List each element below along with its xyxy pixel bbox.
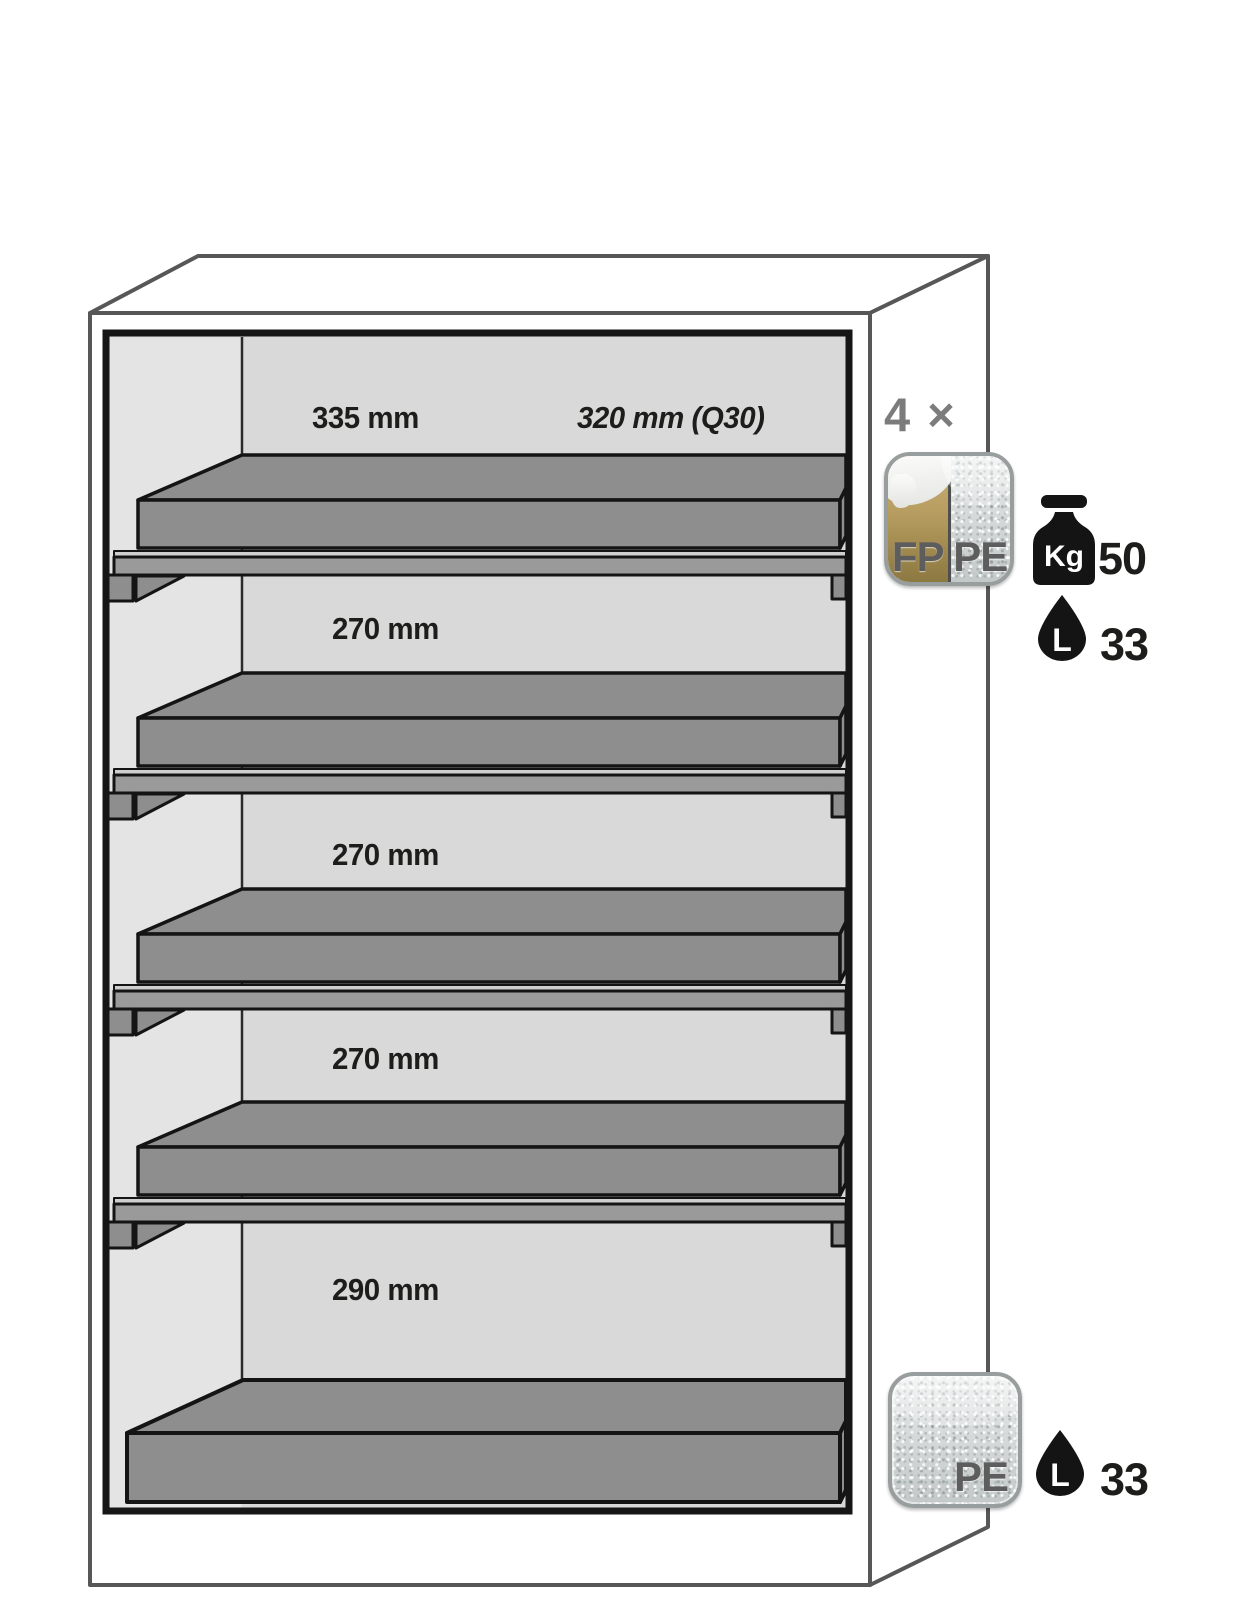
shelf-bracket-right <box>832 793 846 817</box>
compartment-1-height-label: 335 mm <box>312 400 419 436</box>
tray-top <box>138 1102 846 1147</box>
weight-unit-label: Kg <box>1044 540 1084 573</box>
cabinet-top-face <box>90 256 988 313</box>
shelf-count-label: 4 × <box>884 390 957 440</box>
volume-unit-label: L <box>1050 1457 1070 1493</box>
drop-icon: L <box>1036 595 1088 661</box>
shelf-board <box>114 557 846 575</box>
tray-top <box>138 455 846 500</box>
shelf-board <box>114 991 846 1009</box>
badge-pe-label: PE <box>954 1456 1008 1502</box>
tray-front <box>138 934 840 982</box>
shelf-bracket-right <box>832 1009 846 1033</box>
shelf-bracket-right <box>832 1222 846 1246</box>
shelf-board <box>114 1204 846 1222</box>
shelf-material-badge: FP PE <box>884 452 1014 586</box>
tray-front <box>138 500 840 548</box>
tray-top <box>138 889 846 934</box>
shelf-bracket-left <box>108 1009 133 1035</box>
drop-icon: L <box>1034 1430 1086 1496</box>
cabinet-line-art <box>0 0 1241 1624</box>
tray-endcap <box>840 706 846 766</box>
shelf-load-value: 50 <box>1098 535 1146 583</box>
sump-endcap <box>840 1421 846 1502</box>
tray-front <box>138 1147 840 1195</box>
weight-icon: Kg <box>1032 495 1096 585</box>
compartment-5-height-label: 290 mm <box>332 1272 439 1308</box>
tray-endcap <box>840 922 846 982</box>
shelf-bracket-left <box>108 793 133 819</box>
safety-cabinet-diagram: 335 mm 320 mm (Q30) 270 mm 270 mm 270 mm… <box>0 0 1241 1624</box>
sump-top <box>127 1380 846 1433</box>
sump-material-badge: PE <box>888 1372 1022 1508</box>
badge-half-pe: PE <box>951 456 1011 582</box>
shelf-bracket-left <box>108 575 133 601</box>
compartment-3-height-label: 270 mm <box>332 837 439 873</box>
sump-volume-value: 33 <box>1100 1456 1148 1504</box>
volume-unit-label: L <box>1052 622 1072 658</box>
sump-tray <box>127 1380 846 1502</box>
shelf-bracket-right <box>832 575 846 599</box>
tray-front <box>138 718 840 766</box>
shelf-board <box>114 775 846 793</box>
badge-pe-label: PE <box>953 536 1007 582</box>
compartment-1-depth-label: 320 mm (Q30) <box>577 400 764 436</box>
compartment-4-height-label: 270 mm <box>332 1041 439 1077</box>
sump-front <box>127 1433 840 1502</box>
shelf-volume-value: 33 <box>1100 621 1148 669</box>
badge-half-fp: FP <box>888 456 951 582</box>
tray-top <box>138 673 846 718</box>
badge-fp-label: FP <box>892 536 944 582</box>
shelf-bracket-left <box>108 1222 133 1248</box>
tray-endcap <box>840 1135 846 1195</box>
compartment-2-height-label: 270 mm <box>332 611 439 647</box>
tray-endcap <box>840 488 846 548</box>
